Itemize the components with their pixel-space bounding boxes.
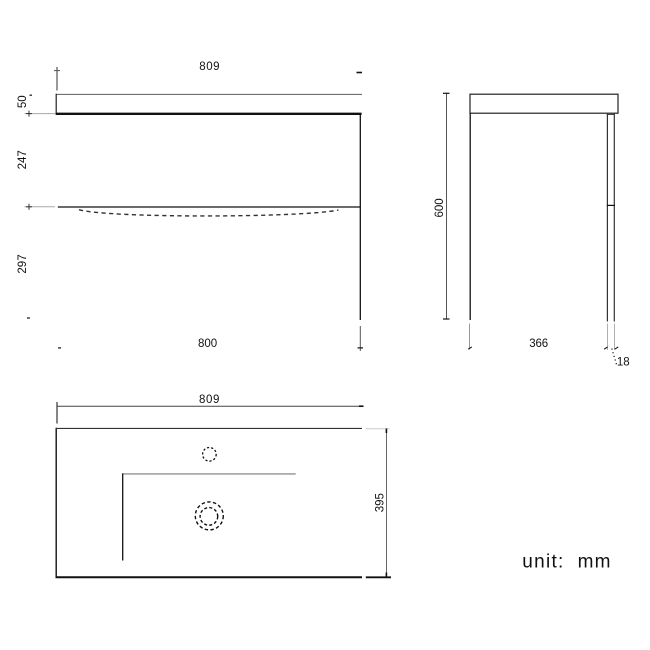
svg-text:297: 297 <box>17 254 29 273</box>
svg-text:50: 50 <box>17 95 29 108</box>
svg-text:395: 395 <box>375 493 387 512</box>
svg-text:unit: mm: unit: mm <box>522 552 610 573</box>
svg-text:247: 247 <box>17 150 29 169</box>
svg-text:18: 18 <box>617 357 630 369</box>
svg-text:600: 600 <box>434 198 446 217</box>
svg-text:809: 809 <box>199 394 219 406</box>
svg-text:809: 809 <box>199 61 219 73</box>
svg-text:366: 366 <box>529 338 548 350</box>
svg-text:800: 800 <box>198 338 217 350</box>
